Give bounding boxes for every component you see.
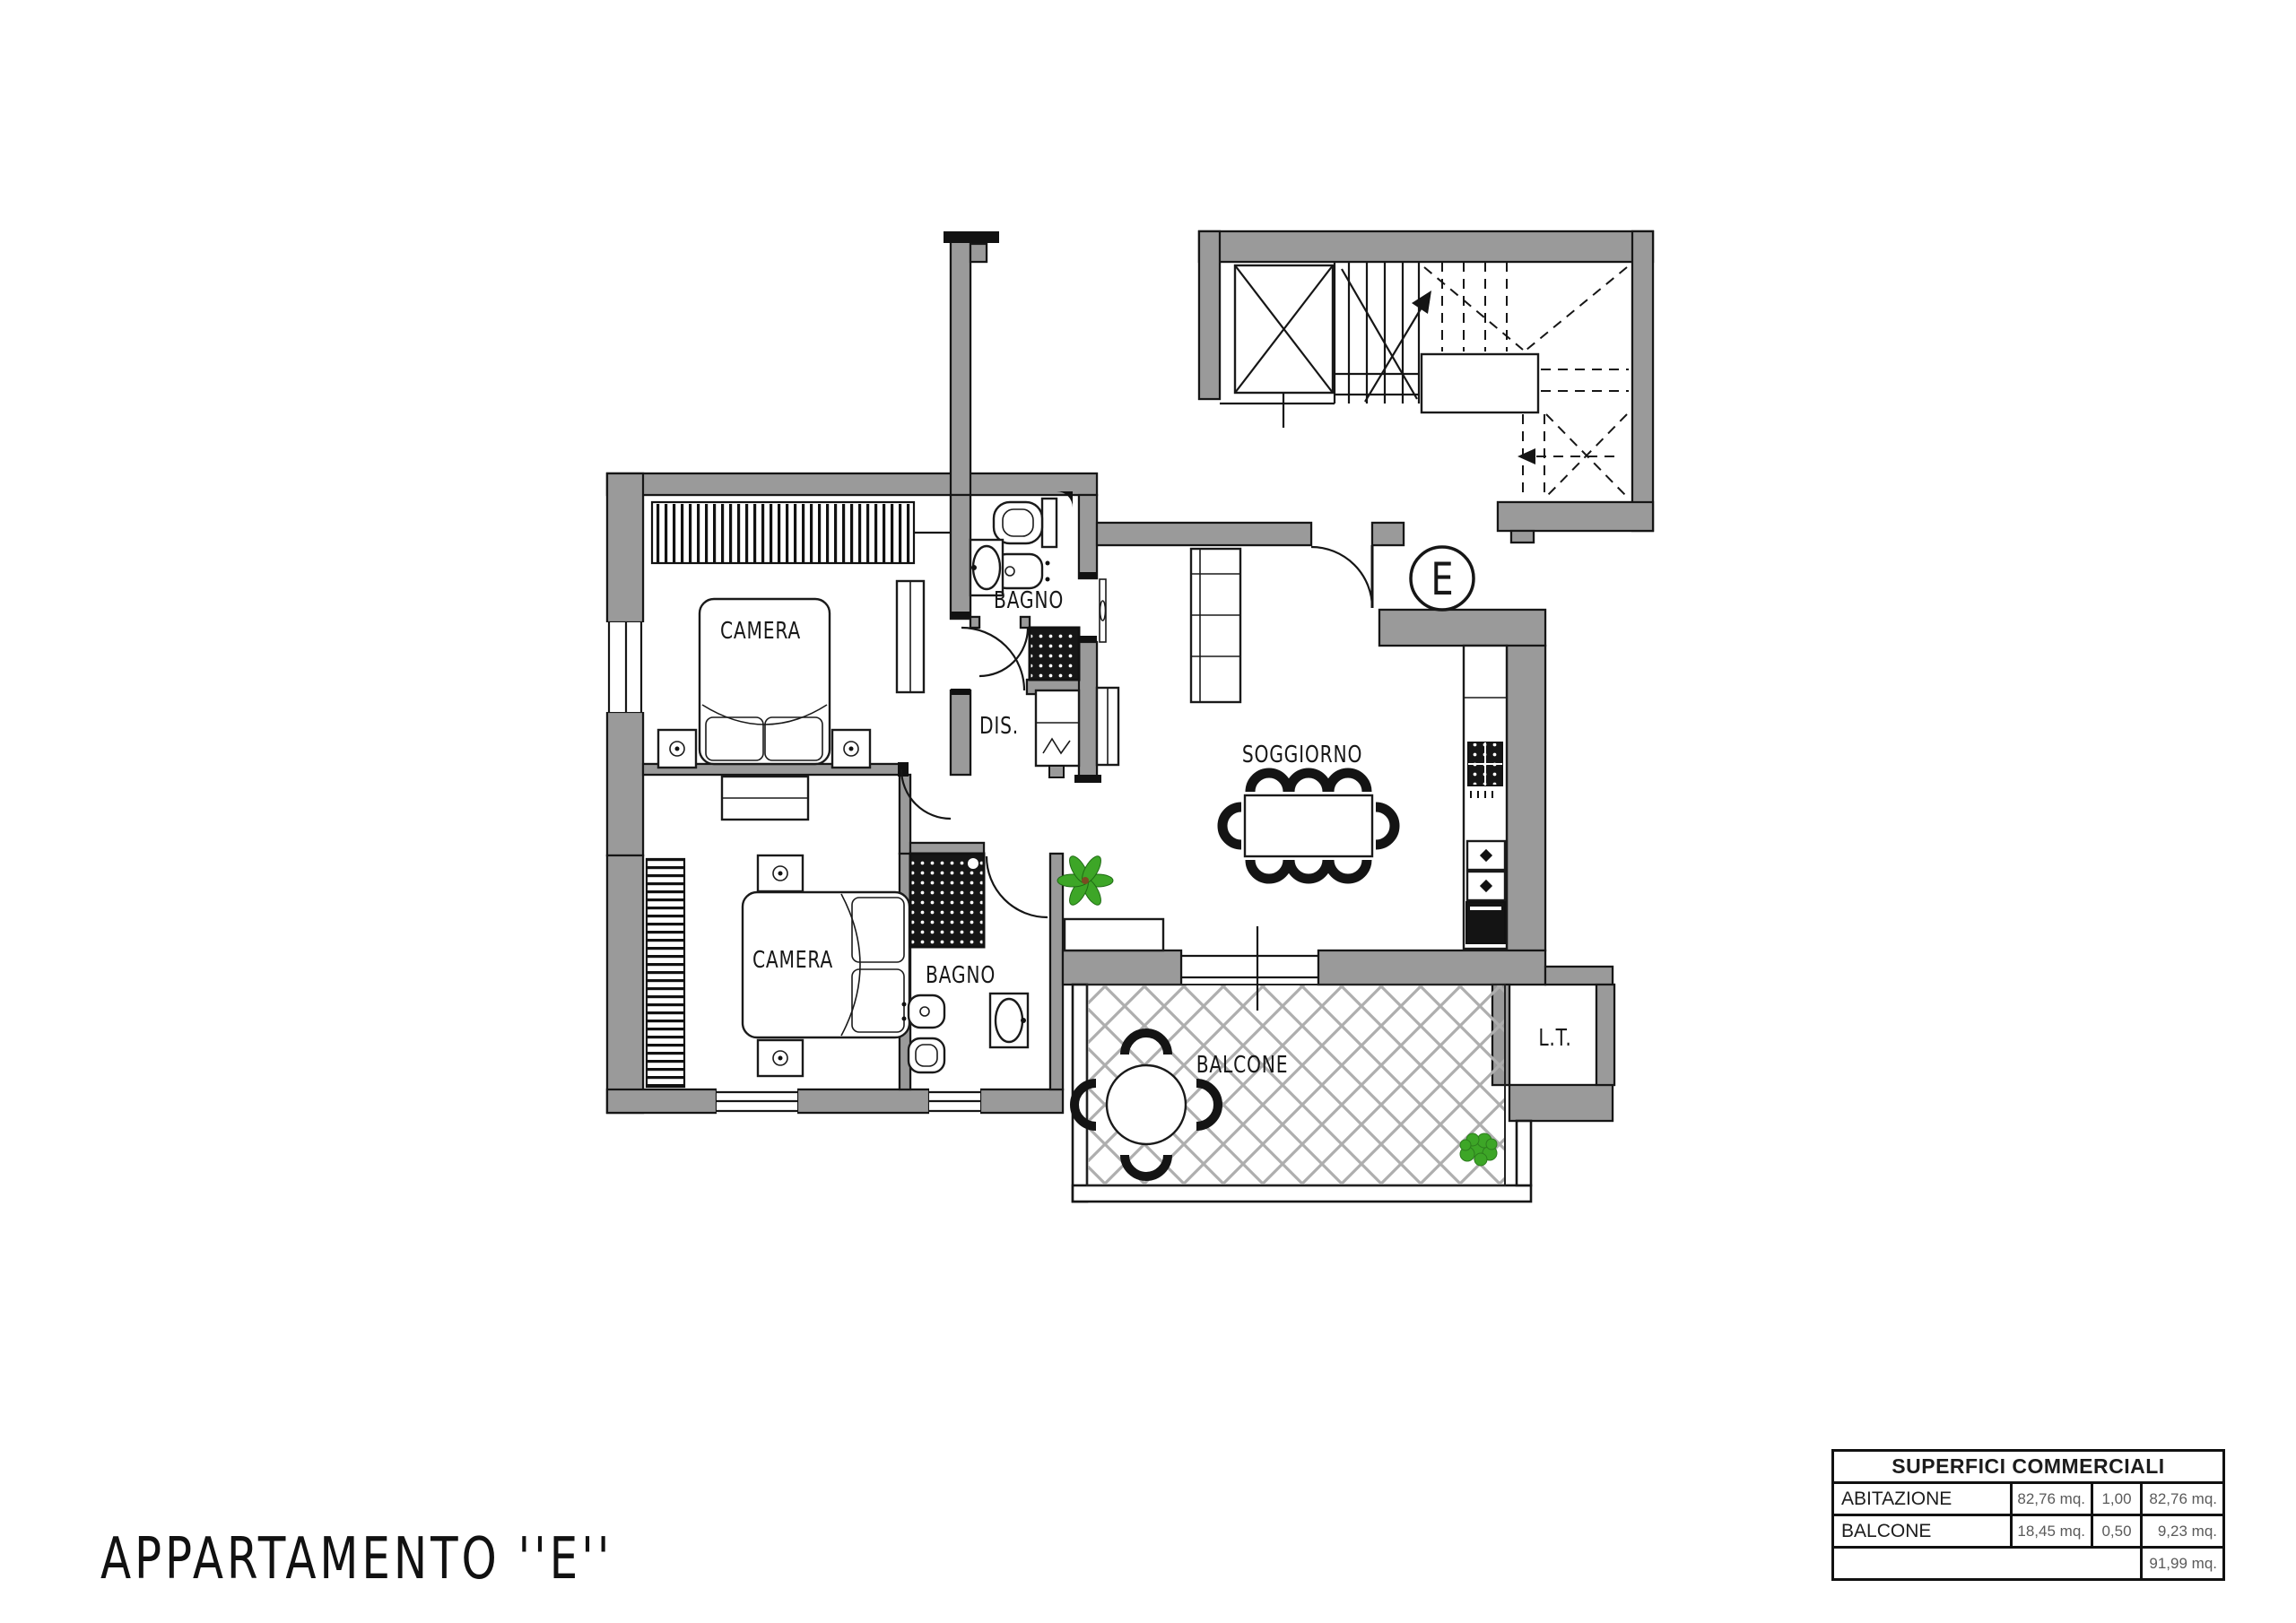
nightstand-left (658, 730, 696, 768)
entrance-door (1311, 545, 1372, 608)
window-camera2 (717, 1088, 797, 1115)
camera2-furniture (647, 777, 909, 1087)
wardrobe-camera2 (647, 859, 684, 1087)
total-area: 91,99 mq. (2142, 1548, 2224, 1580)
surfaces-table-row-abitazione: ABITAZIONE 82,76 mq. 1,00 82,76 mq. (1833, 1483, 2224, 1515)
plan-title: APPARTAMENTO ''E'' (100, 1526, 613, 1593)
surfaces-table-header-row: SUPERFICI COMMERCIALI (1833, 1451, 2224, 1483)
cabinet-camera1 (897, 581, 924, 692)
toilet-icon (909, 1038, 944, 1072)
double-sink-icon (1467, 841, 1505, 900)
row-label: BALCONE (1833, 1515, 2012, 1548)
room-label-camera2: CAMERA (752, 947, 833, 974)
row-label: ABITAZIONE (1833, 1483, 2012, 1515)
dining-table-with-chairs (1222, 773, 1395, 879)
room-label-camera1: CAMERA (720, 618, 801, 645)
kitchen-counter (1464, 646, 1507, 949)
bagno1-fixtures (970, 491, 1079, 680)
row-area: 82,76 mq. (2012, 1483, 2092, 1515)
radiator (1097, 688, 1118, 765)
room-label-dis: DIS. (979, 713, 1019, 740)
room-label-soggiorno: SOGGIORNO (1242, 742, 1362, 768)
surfaces-table-title: SUPERFICI COMMERCIALI (1833, 1451, 2224, 1483)
row-weighted-area: 82,76 mq. (2142, 1483, 2224, 1515)
door-bagno2 (987, 856, 1048, 917)
stair-direction-arrow-down (1518, 448, 1614, 464)
shower-icon (1030, 628, 1079, 680)
room-label-balcone: BALCONE (1196, 1052, 1289, 1079)
water-heater-icon (1036, 690, 1079, 777)
empty-cell (1833, 1548, 2142, 1580)
row-coefficient: 1,00 (2092, 1483, 2142, 1515)
toilet-icon (994, 491, 1073, 547)
balcony-parapet-bottom (1073, 1185, 1531, 1202)
wardrobe-camera1 (652, 502, 951, 563)
nightstand-right (832, 730, 870, 768)
dishwasher-icon (1466, 902, 1505, 943)
floorplan-page: { "title": "APPARTAMENTO ''E''", "unit_b… (0, 0, 2296, 1623)
room-label-lt: L.T. (1538, 1025, 1571, 1052)
door-leaf-soggiorno (1100, 579, 1106, 642)
window-camera1 (605, 622, 645, 712)
shower-icon (910, 854, 984, 947)
stair-landing (1422, 354, 1538, 412)
stairwell (1220, 262, 1629, 499)
floorplan-drawing: E CAMERA CAMERA BAGNO BAGNO DIS. SOGGIOR… (0, 0, 2296, 1623)
sink-icon (990, 994, 1028, 1047)
surfaces-table-total-row: 91,99 mq. (1833, 1548, 2224, 1580)
room-label-bagno2: BAGNO (926, 962, 996, 989)
dresser-camera2 (722, 777, 808, 820)
window-bagno2 (929, 1088, 980, 1115)
room-label-bagno1: BAGNO (994, 587, 1064, 614)
door-camera1 (961, 628, 1024, 690)
row-weighted-area: 9,23 mq. (2142, 1515, 2224, 1548)
surfaces-table-row-balcone: BALCONE 18,45 mq. 0,50 9,23 mq. (1833, 1515, 2224, 1548)
surfaces-table: SUPERFICI COMMERCIALI ABITAZIONE 82,76 m… (1831, 1449, 2225, 1581)
unit-badge: E (1411, 547, 1474, 610)
nightstand-bottom (758, 1040, 803, 1076)
low-cabinet (1065, 919, 1163, 950)
row-coefficient: 0,50 (2092, 1515, 2142, 1548)
bookshelf (1191, 549, 1240, 702)
balcony-parapet-right (1517, 1121, 1531, 1185)
nightstand-top (758, 855, 803, 891)
camera1-furniture (652, 502, 951, 768)
row-area: 18,45 mq. (2012, 1515, 2092, 1548)
unit-badge-letter: E (1431, 553, 1453, 606)
plant-icon-indoor (1057, 854, 1113, 908)
